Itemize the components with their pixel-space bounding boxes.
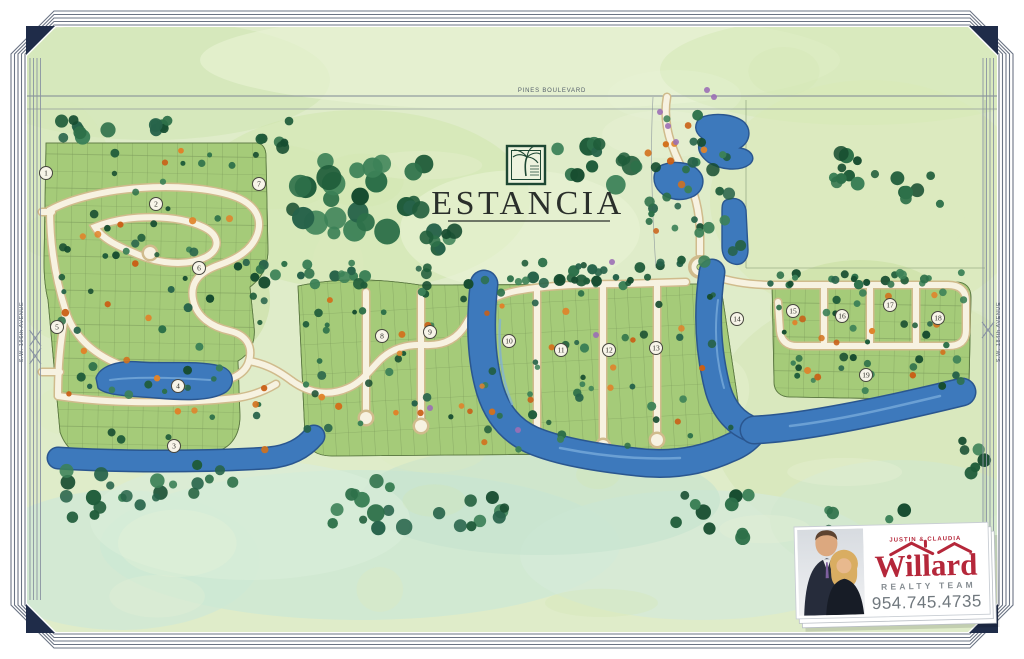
section-marker: 12 [603,344,616,357]
estancia-site-plan: PINES BOULEVARD S.W. 196th AVENUE S.W. 1… [0,0,1024,659]
svg-text:4: 4 [176,382,180,391]
section-marker: 17 [884,299,897,312]
svg-text:11: 11 [557,346,564,355]
estancia-emblem-icon [507,146,545,184]
svg-text:13: 13 [652,344,660,353]
section-marker: 15 [787,305,800,318]
section-marker: 4 [172,380,185,393]
svg-text:2: 2 [154,200,158,209]
road-label-pines-boulevard: PINES BOULEVARD [518,88,586,94]
estancia-title: ESTANCIA [431,185,624,222]
svg-text:15: 15 [789,307,797,316]
svg-text:12: 12 [605,346,613,355]
section-marker: 2 [150,198,163,211]
section-marker: 13 [650,342,663,355]
svg-text:9: 9 [428,328,432,337]
section-marker: 6 [193,262,206,275]
svg-text:17: 17 [886,301,894,310]
section-marker: 9 [424,326,437,339]
section-marker: 11 [555,344,568,357]
section-marker: 1 [40,167,53,180]
section-marker: 16 [836,310,849,323]
svg-text:7: 7 [257,180,261,189]
section-marker: 14 [731,313,744,326]
section-marker: 8 [376,330,389,343]
badge-phone: 954.745.4735 [872,591,982,613]
section-marker: 7 [253,178,266,191]
svg-text:1: 1 [44,169,48,178]
svg-text:8: 8 [380,332,384,341]
badge-brand: Willard [874,547,978,585]
section-marker: 18 [932,312,945,325]
section-marker: 3 [168,440,181,453]
section-marker: 19 [860,369,873,382]
willard-realty-badge: JUSTIN & CLAUDIA Willard REALTY TEAM 954… [794,522,1000,632]
svg-text:18: 18 [934,314,942,323]
section-marker: 5 [51,321,64,334]
svg-text:3: 3 [172,442,176,451]
svg-text:19: 19 [862,371,870,380]
svg-text:16: 16 [838,312,846,321]
agents-photo [797,528,865,616]
svg-text:5: 5 [55,323,59,332]
svg-text:6: 6 [197,264,201,273]
svg-text:14: 14 [733,315,741,324]
section-marker: 10 [503,335,516,348]
svg-text:10: 10 [505,337,513,346]
